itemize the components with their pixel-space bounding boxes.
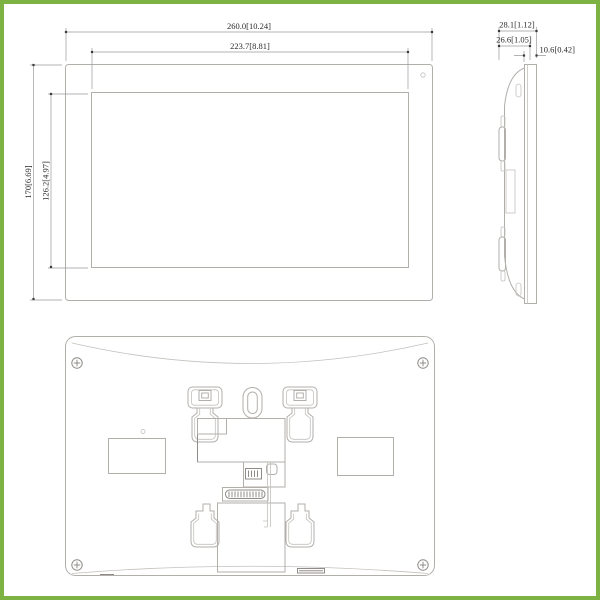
front-outer-body — [66, 65, 433, 301]
dip-switch-pins — [249, 471, 258, 478]
back-top-curve — [72, 343, 428, 364]
mount-hook-top-right — [283, 387, 317, 442]
technical-drawing-canvas: 260.0[10.24] 223.7[8.81] 170[6.69] 126.2… — [4, 4, 596, 596]
switch-recess — [244, 462, 286, 487]
back-right-label-recess — [338, 438, 394, 476]
dim-display-width-label: 223.7[8.81] — [230, 41, 270, 51]
side-rear-housing — [505, 68, 525, 299]
front-view — [66, 65, 433, 301]
dim-overall-width-label: 260.0[10.24] — [227, 21, 271, 31]
dim-display-height-label: 126.2[4.97] — [41, 161, 51, 201]
center-recess — [198, 419, 286, 463]
keyhole-slot-inner — [248, 392, 258, 414]
front-display-area — [92, 93, 409, 268]
dim-panel-depth-label: 10.6[0.42] — [540, 45, 576, 55]
dim-display-height: 126.2[4.97] — [41, 93, 89, 268]
back-outer-body — [66, 337, 435, 576]
side-lower-clip-tab2 — [501, 271, 505, 281]
reset-button-recess — [267, 464, 278, 475]
dim-panel-depth: 10.6[0.42] — [514, 45, 575, 63]
corner-screw-top-right — [418, 358, 428, 368]
corner-screw-top-left — [72, 358, 82, 368]
dim-overall-height-label: 170[6.69] — [23, 165, 33, 198]
mount-hook-bottom-right — [286, 504, 314, 547]
side-recess — [506, 170, 515, 213]
dim-total-depth-label: 28.1[1.12] — [499, 20, 535, 30]
back-left-label-recess — [109, 439, 166, 474]
dim-body-depth-label: 26.6[1.05] — [496, 35, 532, 45]
side-top-boss — [516, 84, 521, 97]
drawing-page: 260.0[10.24] 223.7[8.81] 170[6.69] 126.2… — [0, 0, 600, 600]
mount-hook-bottom-left — [191, 504, 219, 547]
back-view — [66, 337, 435, 576]
terminal-pins — [229, 492, 262, 498]
front-camera-dot — [421, 73, 425, 77]
lower-recess — [218, 503, 286, 572]
corner-screw-bottom-right — [418, 560, 428, 570]
back-left-hole — [141, 430, 145, 434]
dip-switch — [246, 469, 262, 480]
side-view — [499, 65, 537, 304]
corner-screw-bottom-left — [72, 560, 82, 570]
side-front-panel — [525, 65, 537, 304]
dim-body-depth: 26.6[1.05] — [496, 35, 532, 61]
center-recess-sub-window — [198, 419, 227, 435]
